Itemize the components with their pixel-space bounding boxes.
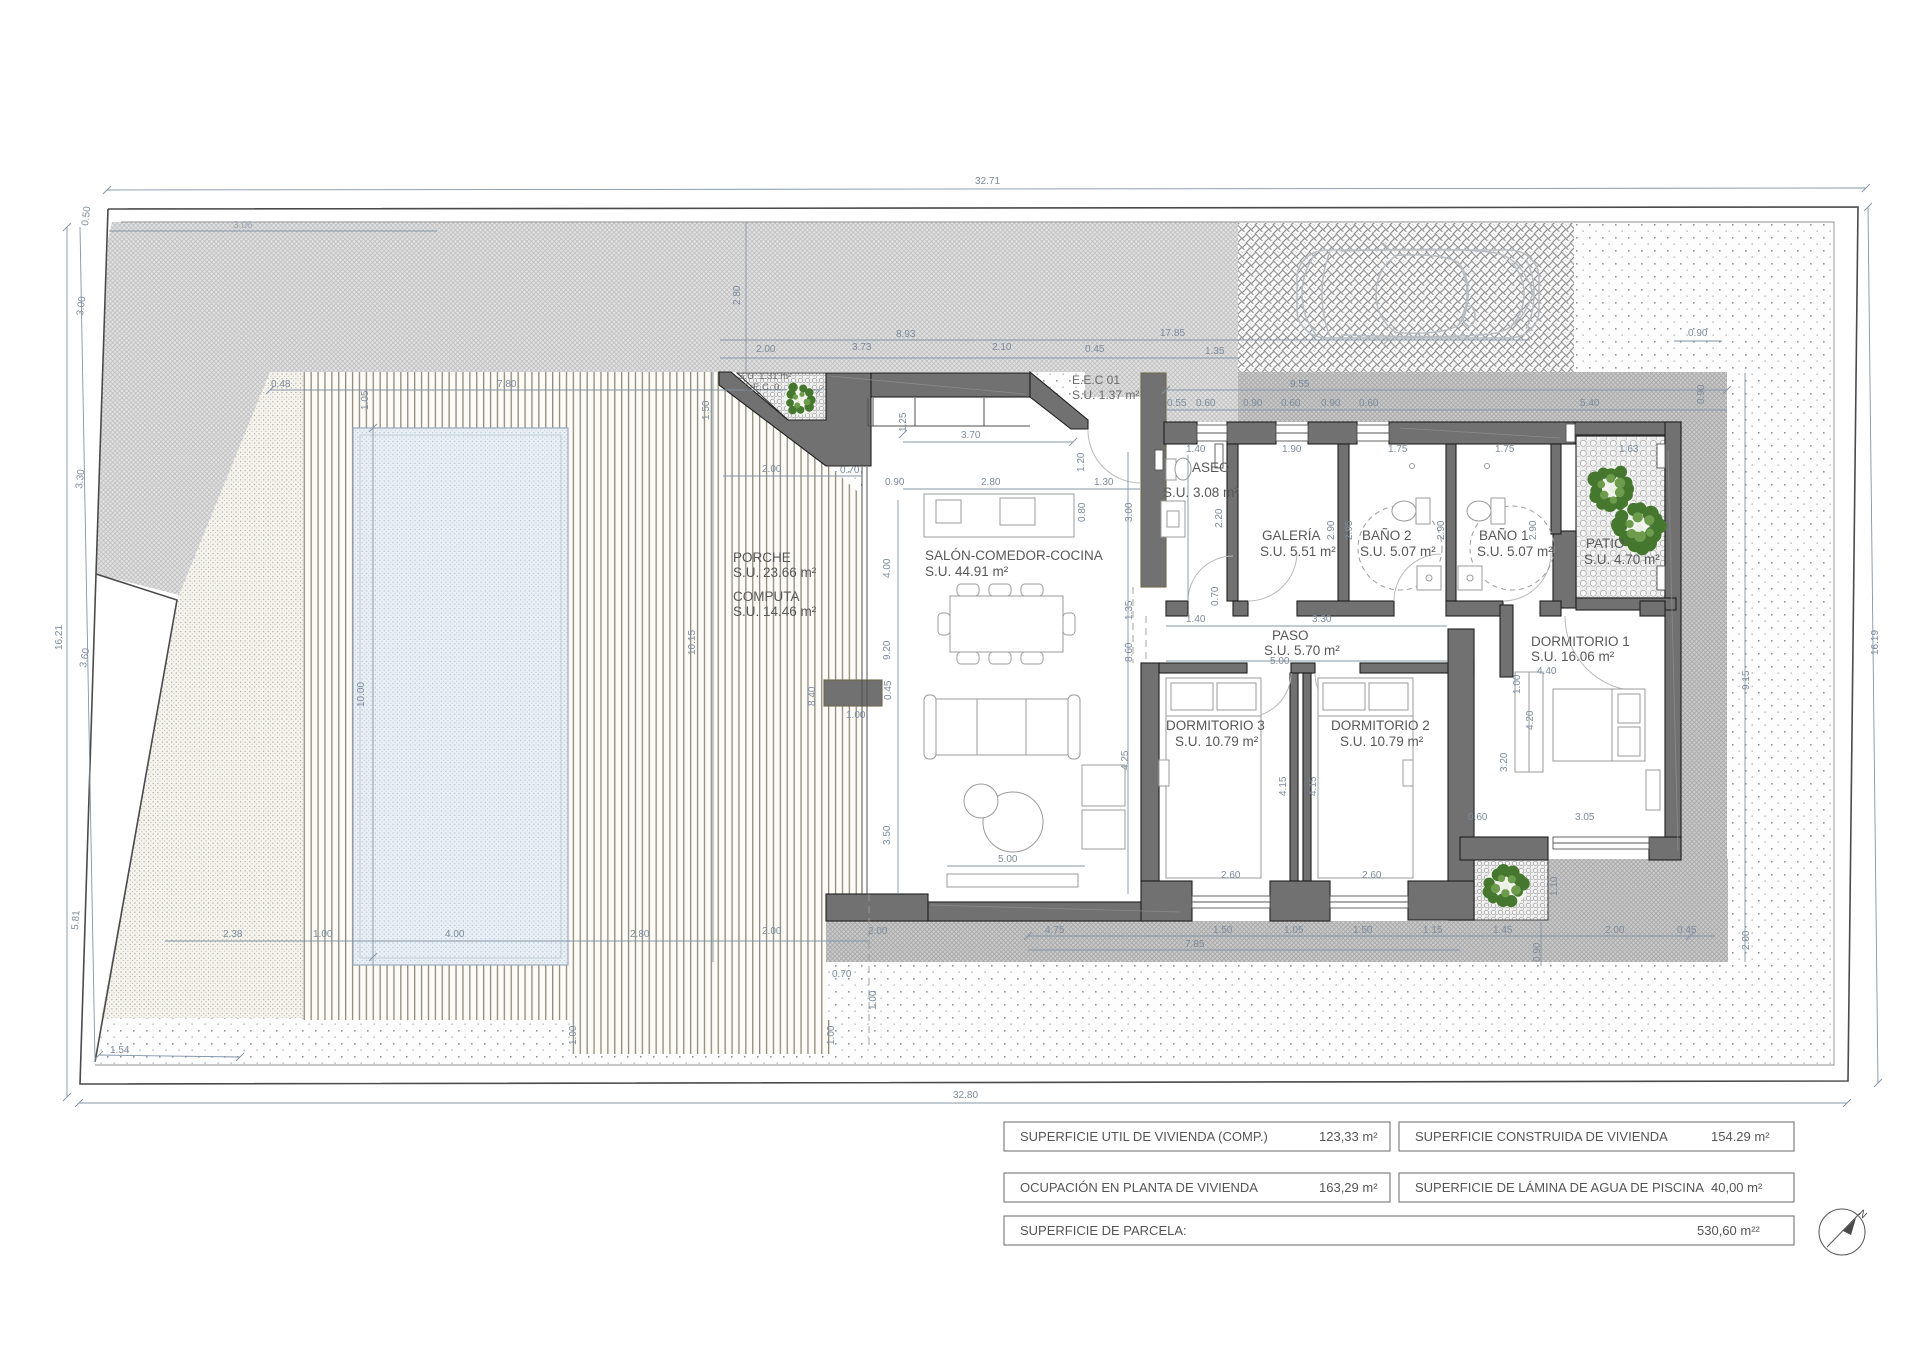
svg-text:4.75: 4.75	[1045, 925, 1065, 936]
svg-text:0.45: 0.45	[1677, 925, 1697, 936]
svg-text:1.00: 1.00	[868, 990, 879, 1010]
svg-text:2.00: 2.00	[1605, 925, 1625, 936]
svg-text:4.15: 4.15	[1278, 776, 1289, 796]
svg-text:0.70: 0.70	[832, 969, 852, 980]
svg-text:1.00: 1.00	[846, 710, 866, 721]
svg-text:1.10: 1.10	[1549, 876, 1560, 896]
svg-text:ASEO: ASEO	[1192, 460, 1230, 475]
svg-text:1.75: 1.75	[1388, 444, 1408, 455]
svg-text:4.00: 4.00	[882, 558, 893, 578]
svg-text:1.00: 1.00	[313, 929, 333, 940]
svg-text:5.81: 5.81	[70, 910, 82, 931]
svg-text:SUPERFICIE UTIL DE VIVIENDA (: SUPERFICIE UTIL DE VIVIENDA (COMP.)	[1020, 1129, 1268, 1144]
svg-text:S.U. 44.91 m²: S.U. 44.91 m²	[925, 564, 1009, 579]
svg-text:S.U. 10.79 m²: S.U. 10.79 m²	[1340, 734, 1424, 749]
svg-text:1.05: 1.05	[1284, 925, 1304, 936]
svg-text:1.00: 1.00	[826, 1025, 837, 1045]
svg-text:3.30: 3.30	[1312, 614, 1332, 625]
svg-text:2.90: 2.90	[1528, 520, 1539, 540]
svg-text:2.80: 2.80	[981, 477, 1001, 488]
svg-text:4.25: 4.25	[1120, 750, 1131, 770]
svg-text:0.60: 0.60	[1359, 398, 1379, 409]
svg-text:1.05: 1.05	[360, 390, 371, 410]
svg-text:SUPERFICIE DE LÁMINA DE AGUA D: SUPERFICIE DE LÁMINA DE AGUA DE PISCINA	[1415, 1180, 1704, 1195]
svg-text:7.80: 7.80	[497, 379, 517, 390]
svg-text:0.90: 0.90	[1696, 384, 1707, 404]
svg-text:8.93: 8.93	[896, 329, 916, 340]
svg-text:0.90: 0.90	[885, 477, 905, 488]
svg-text:0.60: 0.60	[1196, 398, 1216, 409]
svg-text:16.19: 16.19	[1870, 630, 1881, 655]
svg-text:1.40: 1.40	[1186, 614, 1206, 625]
svg-text:3.05: 3.05	[1575, 812, 1595, 823]
svg-text:1.50: 1.50	[1213, 925, 1233, 936]
svg-text:8.60: 8.60	[1124, 642, 1135, 662]
svg-text:PORCHE: PORCHE	[733, 550, 791, 565]
svg-text:2.00: 2.00	[1741, 930, 1752, 950]
svg-text:10.15: 10.15	[687, 630, 698, 655]
svg-text:3.06: 3.06	[233, 220, 253, 231]
svg-text:BAÑO 2: BAÑO 2	[1362, 528, 1412, 543]
svg-text:COMPUTA: COMPUTA	[733, 589, 800, 604]
svg-text:DORMITORIO 3: DORMITORIO 3	[1166, 718, 1265, 733]
svg-text:SUPERFICIE CONSTRUIDA DE VIVIE: SUPERFICIE CONSTRUIDA DE VIVIENDA	[1415, 1129, 1668, 1144]
svg-text:GALERÍA: GALERÍA	[1262, 528, 1321, 543]
svg-text:1.50: 1.50	[1353, 925, 1373, 936]
svg-text:1.50: 1.50	[701, 400, 712, 420]
svg-text:17.85: 17.85	[1160, 328, 1185, 339]
svg-text:3.20: 3.20	[1499, 752, 1510, 772]
svg-text:8.40: 8.40	[807, 686, 818, 706]
svg-text:530,60 m²²: 530,60 m²²	[1697, 1223, 1761, 1238]
svg-text:0.90: 0.90	[1688, 328, 1708, 339]
svg-text:1.75: 1.75	[1495, 444, 1515, 455]
svg-text:2.90: 2.90	[1326, 520, 1337, 540]
svg-text:1.00: 1.00	[568, 1025, 579, 1045]
svg-text:1.40: 1.40	[1186, 444, 1206, 455]
svg-text:163,29 m²: 163,29 m²	[1319, 1180, 1378, 1195]
svg-text:S.U. 5.51 m²: S.U. 5.51 m²	[1260, 544, 1336, 559]
svg-text:1.35: 1.35	[1205, 346, 1225, 357]
svg-text:32.80: 32.80	[953, 1090, 978, 1101]
svg-text:1.20: 1.20	[1076, 452, 1087, 472]
svg-text:1.90: 1.90	[1282, 444, 1302, 455]
svg-text:1.45: 1.45	[1493, 925, 1513, 936]
svg-text:3.00: 3.00	[1124, 502, 1135, 522]
svg-text:0.70: 0.70	[1210, 586, 1221, 606]
svg-text:DORMITORIO 2: DORMITORIO 2	[1331, 718, 1430, 733]
svg-text:3.70: 3.70	[961, 430, 981, 441]
svg-text:2.00: 2.00	[762, 464, 782, 475]
svg-text:4.15: 4.15	[1308, 776, 1319, 796]
svg-text:1.54: 1.54	[110, 1045, 130, 1056]
svg-text:5.00: 5.00	[998, 854, 1018, 865]
svg-text:BAÑO 1: BAÑO 1	[1479, 528, 1529, 543]
svg-text:1.35: 1.35	[1124, 600, 1135, 620]
svg-text:S.U. 5.07 m²: S.U. 5.07 m²	[1477, 544, 1553, 559]
svg-text:0.60: 0.60	[1281, 398, 1301, 409]
svg-text:DORMITORIO 1: DORMITORIO 1	[1531, 634, 1630, 649]
svg-text:2.00: 2.00	[868, 926, 888, 937]
svg-text:S.U. 1.37 m²: S.U. 1.37 m²	[1072, 388, 1139, 402]
svg-text:1.25: 1.25	[898, 412, 909, 432]
svg-text:9.55: 9.55	[1290, 379, 1310, 390]
svg-text:154.29 m²: 154.29 m²	[1711, 1129, 1770, 1144]
svg-text:0.48: 0.48	[271, 379, 291, 390]
svg-text:S.U. 5.07 m²: S.U. 5.07 m²	[1360, 544, 1436, 559]
svg-text:4.40: 4.40	[1537, 666, 1557, 677]
svg-text:2.00: 2.00	[756, 344, 776, 355]
svg-text:0.45: 0.45	[1085, 344, 1105, 355]
svg-text:9.15: 9.15	[1741, 670, 1752, 690]
svg-text:SALÓN-COMEDOR-COCINA: SALÓN-COMEDOR-COCINA	[925, 548, 1103, 563]
svg-text:2.90: 2.90	[1436, 520, 1447, 540]
svg-text:1.30: 1.30	[1094, 477, 1114, 488]
svg-text:2.10: 2.10	[992, 342, 1012, 353]
svg-text:1.15: 1.15	[1423, 925, 1443, 936]
svg-text:0.70: 0.70	[840, 465, 860, 476]
svg-text:2.60: 2.60	[1221, 870, 1241, 881]
svg-text:S.U. 16.06 m²: S.U. 16.06 m²	[1531, 649, 1615, 664]
svg-text:3.73: 3.73	[852, 342, 872, 353]
svg-text:4.20: 4.20	[1525, 710, 1536, 730]
svg-text:2.00: 2.00	[762, 926, 782, 937]
svg-text:0.80: 0.80	[1077, 502, 1088, 522]
svg-text:16.21: 16.21	[54, 625, 65, 650]
svg-text:E.E.C. 0: E.E.C. 0	[744, 382, 779, 393]
svg-text:2.95: 2.95	[1344, 520, 1355, 540]
svg-text:0.45: 0.45	[883, 680, 894, 700]
svg-text:10.00: 10.00	[356, 682, 367, 707]
svg-text:123,33 m²: 123,33 m²	[1319, 1129, 1378, 1144]
svg-text:E.E.C 01: E.E.C 01	[1072, 373, 1120, 387]
svg-text:2.38: 2.38	[223, 929, 243, 940]
svg-text:2.20: 2.20	[1214, 508, 1225, 528]
svg-text:PASO: PASO	[1272, 628, 1309, 643]
svg-text:0.90: 0.90	[1243, 398, 1263, 409]
svg-text:5.40: 5.40	[1580, 398, 1600, 409]
svg-text:1.00: 1.00	[1512, 674, 1523, 694]
svg-text:32.71: 32.71	[975, 176, 1000, 187]
svg-text:2.60: 2.60	[1362, 870, 1382, 881]
svg-text:0.90: 0.90	[1321, 398, 1341, 409]
svg-text:2.80: 2.80	[630, 929, 650, 940]
svg-text:PATIO: PATIO	[1586, 536, 1625, 551]
svg-text:7.85: 7.85	[1185, 939, 1205, 950]
svg-text:S.U. 23.66 m²: S.U. 23.66 m²	[733, 565, 817, 580]
svg-text:0.55: 0.55	[1167, 398, 1187, 409]
svg-text:OCUPACIÓN EN PLANTA DE VIVIEND: OCUPACIÓN EN PLANTA DE VIVIENDA	[1020, 1180, 1258, 1195]
svg-text:S.U. 5.70 m²: S.U. 5.70 m²	[1264, 643, 1340, 658]
svg-text:3.50: 3.50	[882, 825, 893, 845]
svg-text:1.63: 1.63	[1619, 444, 1639, 455]
svg-text:40,00 m²: 40,00 m²	[1711, 1180, 1763, 1195]
svg-text:S.U. 14.46 m²: S.U. 14.46 m²	[733, 604, 817, 619]
svg-text:9.20: 9.20	[882, 640, 893, 660]
svg-text:0.90: 0.90	[1532, 942, 1543, 962]
svg-text:S.U. 10.79 m²: S.U. 10.79 m²	[1175, 734, 1259, 749]
svg-text:S.U. 1.31 m²: S.U. 1.31 m²	[738, 371, 791, 382]
svg-text:0.60: 0.60	[1468, 812, 1488, 823]
svg-text:2.80: 2.80	[732, 285, 743, 305]
svg-text:S.U. 3.08 m²: S.U. 3.08 m²	[1163, 485, 1239, 500]
svg-text:4.00: 4.00	[445, 929, 465, 940]
svg-text:SUPERFICIE DE PARCELA:: SUPERFICIE DE PARCELA:	[1020, 1223, 1187, 1238]
svg-text:S.U. 4.70 m²: S.U. 4.70 m²	[1584, 552, 1660, 567]
